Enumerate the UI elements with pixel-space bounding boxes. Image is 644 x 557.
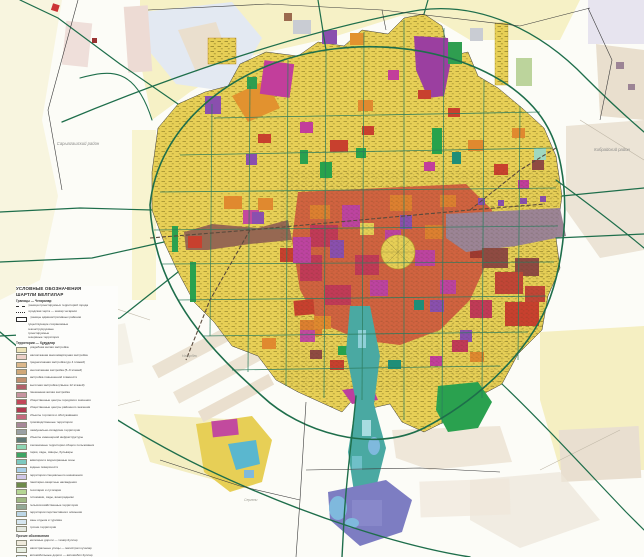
legend-sections: Границы — Чегараларграница проектируемых… — [16, 300, 118, 557]
legend-swatch — [16, 504, 27, 510]
legend-swatch — [16, 474, 27, 480]
legend-entry-label: границы административных районов — [30, 316, 82, 319]
legend-entry: объекты торговли и обслуживания — [16, 414, 118, 420]
legend-entry-label: коммунально-складские территории — [30, 429, 81, 432]
legend-swatch — [16, 407, 27, 413]
legend-entry: железные дороги — темир йуллар — [16, 539, 118, 545]
legend-swatch — [16, 384, 27, 390]
legend-entry-label: зоны отдыха и туризма — [30, 519, 62, 522]
legend-entry: существующие сохраняемые — [16, 323, 118, 326]
legend-swatch — [16, 489, 27, 495]
legend-entry: застройка повышенной этажности — [16, 376, 118, 382]
legend-swatch — [16, 540, 27, 546]
legend-entry: реконструируемые — [16, 328, 118, 331]
legend-entry-label: питомники, сады, виноградники — [30, 496, 74, 499]
legend-swatch — [16, 482, 27, 488]
legend-entry: зоны отдыха и туризма — [16, 519, 118, 525]
legend-entry-label: территории перспективного освоения — [30, 511, 83, 514]
legend-swatch — [16, 429, 27, 435]
legend-entry-label: застройка повышенной этажности — [30, 376, 78, 379]
legend-entry: усадебная жилая застройка — [16, 346, 118, 352]
legend-swatch — [16, 497, 27, 503]
legend-entry: граница проектируемых территорий города — [16, 304, 118, 309]
legend-entry: лесопарки и лугопарки — [16, 489, 118, 495]
legend-entry-label: общественные центры районного значения — [30, 406, 91, 409]
legend-entry: прочие территории — [16, 526, 118, 532]
legend-entry: коммунально-складские территории — [16, 429, 118, 435]
legend-entry-label: резервные территории — [28, 336, 60, 339]
legend-entry: питомники, сады, виноградники — [16, 496, 118, 502]
legend-entry: территории перспективного освоения — [16, 511, 118, 517]
legend-swatch — [16, 437, 27, 443]
legend-entry-label: озеленённые территории общего пользовани… — [30, 444, 95, 447]
legend-swatch — [16, 452, 27, 458]
legend-entry-label: магистральные улицы — магистрал кучалар — [30, 547, 92, 550]
legend-swatch — [16, 362, 27, 368]
legend-entry: парки, сады, скверы, бульвары — [16, 451, 118, 457]
legend-swatch — [16, 526, 27, 532]
place-label-district: Сергели — [244, 498, 257, 502]
legend-entry-label: санитарно-защитные насаждения — [30, 481, 77, 484]
master-plan-screenshot: Сарыагашский район Кибрайский район Наза… — [0, 0, 644, 557]
region-label-right: Кибрайский район — [580, 148, 644, 153]
legend-entry-label: лесопарки и лугопарки — [30, 489, 62, 492]
place-label-settlement: Назарбек — [182, 354, 197, 358]
legend-swatch — [16, 519, 27, 525]
legend-entry: производственные территории — [16, 421, 118, 427]
legend-swatch — [16, 459, 27, 465]
legend-entry: границы административных районов — [16, 316, 118, 322]
legend-line-symbol — [16, 312, 25, 313]
map-legend: УСЛОВНЫЕ ОБОЗНАЧЕНИЯ ШАРТЛИ БЕЛГИЛАР Гра… — [16, 286, 118, 557]
legend-entry: водные поверхности — [16, 466, 118, 472]
region-label-left: Сарыагашский район — [46, 142, 110, 147]
legend-entry-label: среднеэтажная застройка (до 4 этажей) — [30, 361, 86, 364]
legend-swatch — [16, 422, 27, 428]
legend-entry: акватории и водоохранные зоны — [16, 459, 118, 465]
legend-entry-label: общественные центры городского значения — [30, 399, 91, 402]
legend-entry: проектируемые — [16, 332, 118, 335]
legend-entry: общественные центры районного значения — [16, 406, 118, 412]
legend-swatch — [16, 369, 27, 375]
legend-swatch — [16, 444, 27, 450]
legend-entry: многоэтажная застройка (5–9 этажей) — [16, 369, 118, 375]
legend-entry-label: проектируемые — [28, 332, 50, 335]
legend-entry-label: производственные территории — [30, 421, 73, 424]
legend-entry: санитарно-защитные насаждения — [16, 481, 118, 487]
legend-entry-label: усадебная жилая застройка — [30, 346, 69, 349]
legend-entry: озеленённые территории общего пользовани… — [16, 444, 118, 450]
legend-swatch — [16, 511, 27, 517]
legend-title-uz: ШАРТЛИ БЕЛГИЛАР — [16, 292, 118, 298]
legend-section-header: Прочие обозначения — [16, 535, 118, 539]
legend-entry-label: водные поверхности — [30, 466, 59, 469]
legend-entry-label: парки, сады, скверы, бульвары — [30, 451, 73, 454]
legend-swatch — [16, 354, 27, 360]
legend-section-header: Территории — Худудлар — [16, 342, 118, 346]
legend-swatch — [16, 414, 27, 420]
legend-entry: малоэтажная многоквартирная застройка — [16, 354, 118, 360]
legend-entry-label: железные дороги — темир йуллар — [30, 539, 78, 542]
legend-entry: среднеэтажная застройка (до 4 этажей) — [16, 361, 118, 367]
legend-entry-label: высотная застройка (свыше 12 этажей) — [30, 384, 85, 387]
legend-entry-label: многоэтажная застройка (5–9 этажей) — [30, 369, 83, 372]
legend-swatch — [16, 377, 27, 383]
legend-entry-label: граница проектируемых территорий города — [28, 304, 89, 307]
legend-entry-label: смешанная жилая застройка — [30, 391, 70, 394]
legend-entry-label: прочие территории — [30, 526, 57, 529]
legend-swatch — [16, 347, 27, 353]
legend-swatch — [16, 399, 27, 405]
legend-entry-label: территории специального назначения — [30, 474, 83, 477]
legend-entry-label: реконструируемые — [28, 328, 54, 331]
legend-line-symbol — [16, 306, 25, 307]
legend-entry-label: малоэтажная многоквартирная застройка — [30, 354, 88, 357]
legend-entry-label: объекты торговли и обслуживания — [30, 414, 78, 417]
legend-swatch — [16, 547, 27, 553]
legend-box-symbol — [16, 317, 27, 323]
legend-entry-label: городская черта — шахар чегараси — [28, 310, 77, 313]
legend-entry-label: сельскохозяйственные территории — [30, 504, 79, 507]
legend-entry-label: акватории и водоохранные зоны — [30, 459, 75, 462]
legend-swatch — [16, 392, 27, 398]
legend-entry-label: существующие сохраняемые — [28, 323, 69, 326]
legend-entry: резервные территории — [16, 336, 118, 339]
legend-entry: городская черта — шахар чегараси — [16, 310, 118, 315]
legend-entry: смешанная жилая застройка — [16, 391, 118, 397]
legend-entry: объекты инженерной инфраструктуры — [16, 436, 118, 442]
legend-entry: высотная застройка (свыше 12 этажей) — [16, 384, 118, 390]
legend-entry-label: объекты инженерной инфраструктуры — [30, 436, 84, 439]
legend-entry: магистральные улицы — магистрал кучалар — [16, 547, 118, 553]
legend-entry: территории специального назначения — [16, 474, 118, 480]
legend-entry: сельскохозяйственные территории — [16, 504, 118, 510]
legend-swatch — [16, 467, 27, 473]
legend-section-header: Границы — Чегаралар — [16, 300, 118, 304]
legend-entry: общественные центры городского значения — [16, 399, 118, 405]
